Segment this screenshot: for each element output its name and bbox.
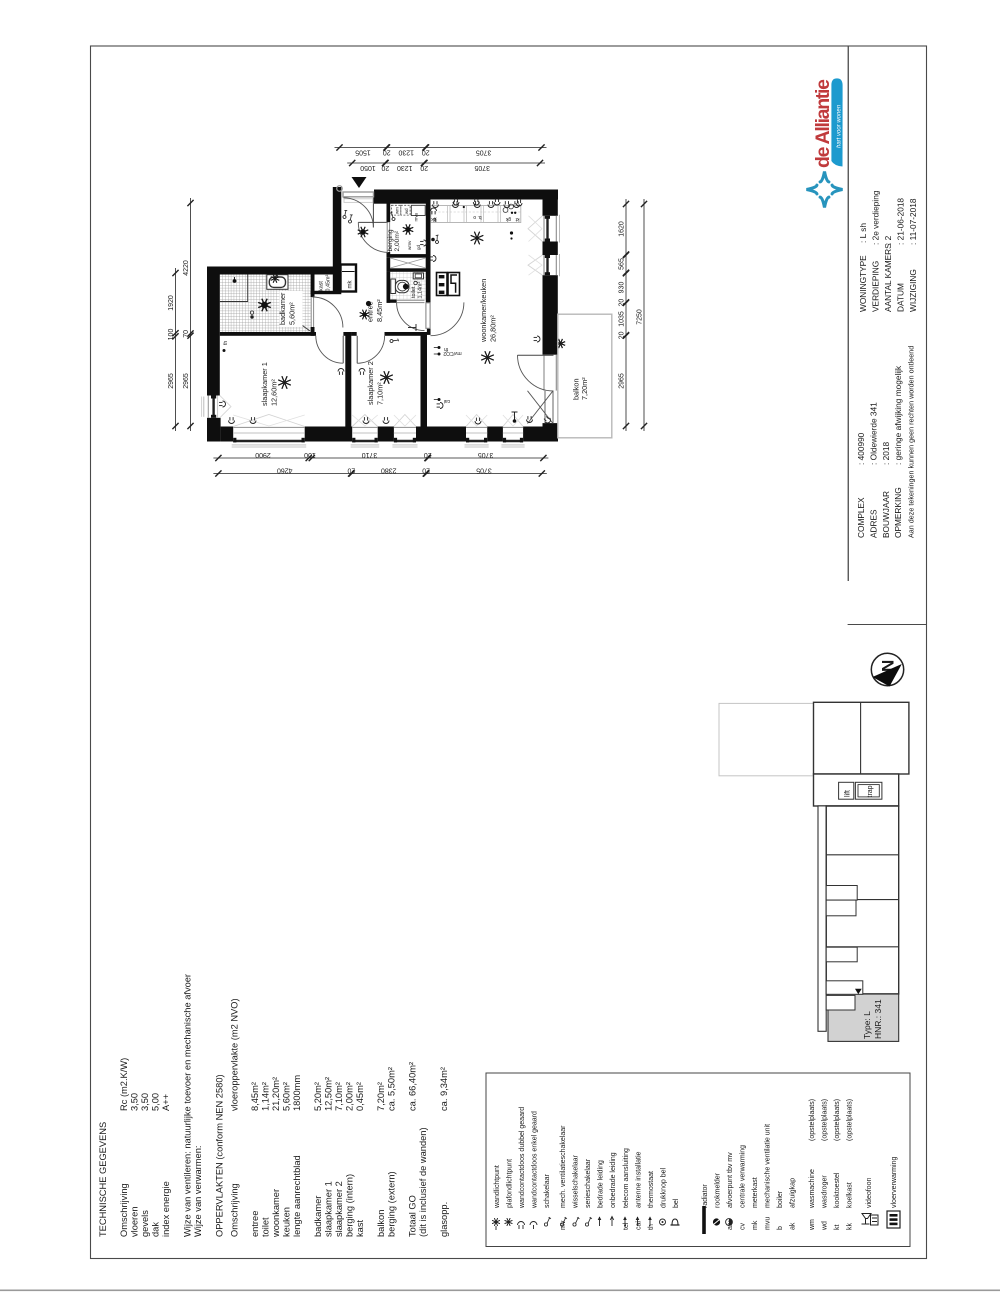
svg-text:kt: kt [834,1225,841,1231]
svg-text:radiator: radiator [702,1184,709,1208]
svg-text:ca. 66,40m²: ca. 66,40m² [408,1062,418,1111]
svg-text:toilet: toilet [411,286,417,298]
svg-text:TECHNISCHE GEGEVENS: TECHNISCHE GEGEVENS [98,1122,108,1237]
svg-text:WIJZIGING: WIJZIGING [908,269,918,312]
svg-text:OPPERVLAKTEN (conform NEN 2580: OPPERVLAKTEN (conform NEN 2580) [215,1074,225,1237]
svg-text:glasopp.: glasopp. [439,1202,449,1237]
svg-text:badkamer: badkamer [278,292,287,325]
svg-text:2965: 2965 [183,373,190,389]
svg-text:(opstelplaats): (opstelplaats) [834,1099,841,1141]
svg-text:centrale verwarming: centrale verwarming [740,1145,747,1208]
svg-text:2,00m²: 2,00m² [345,1082,355,1111]
svg-text:: Oldewierde 341: : Oldewierde 341 [869,402,879,465]
svg-text:Wijze van ventileren: natuurli: Wijze van ventileren: natuurlijke toevoe… [183,974,193,1237]
svg-text:afvoerpunt tbv mv: afvoerpunt tbv mv [727,1152,734,1208]
svg-text:0,45m²: 0,45m² [326,275,332,292]
svg-text:kast: kast [355,1220,365,1237]
svg-text:20: 20 [619,331,626,339]
svg-text:wandcontactdoos enkel geaard: wandcontactdoos enkel geaard [532,1111,539,1209]
svg-text:7,10m²: 7,10m² [334,1082,344,1111]
svg-text:wisselschakelaar: wisselschakelaar [573,1154,580,1209]
svg-text:mechanische ventilatie unit: mechanische ventilatie unit [765,1124,772,1208]
svg-text:cai: cai [444,398,450,404]
svg-text:Aan deze tekeningen kunnen gee: Aan deze tekeningen kunnen geen rechten … [907,346,916,538]
svg-text:wd: wd [822,1221,829,1231]
svg-text:keuken: keuken [282,1207,292,1237]
svg-text:5,20m²: 5,20m² [313,1082,323,1111]
svg-text:2965: 2965 [168,373,175,389]
svg-text:b: b [777,1226,784,1230]
svg-text:Totaal GO: Totaal GO [408,1195,418,1237]
svg-text:ca. 9,34m²: ca. 9,34m² [439,1067,449,1111]
svg-text:1920: 1920 [168,295,175,311]
svg-text:VERDIEPING: VERDIEPING [871,261,881,312]
svg-text:ca. 5,50m²: ca. 5,50m² [387,1067,397,1111]
svg-text:wm: wm [395,207,400,214]
svg-text:: 400990: : 400990 [856,432,866,465]
svg-text:wandcontactdoos dubbel geaard: wandcontactdoos dubbel geaard [519,1107,526,1209]
svg-text:3705: 3705 [478,451,494,458]
svg-text:wmv: wmv [407,240,412,250]
svg-text:tel: tel [623,1222,630,1230]
svg-text:5,60m²: 5,60m² [288,302,297,325]
svg-text:mvu: mvu [414,212,419,221]
svg-text:20: 20 [347,466,355,473]
svg-text:wasmachine: wasmachine [809,1169,816,1209]
svg-text:ak: ak [790,1222,797,1230]
svg-text:Wijze van verwarmen:: Wijze van verwarmen: [193,1146,203,1237]
svg-text:1505: 1505 [355,148,371,155]
svg-text:gevels: gevels [140,1210,150,1237]
svg-text:slaapkamer 2: slaapkamer 2 [334,1181,344,1237]
svg-text:3,50: 3,50 [130,1093,140,1111]
svg-text:drukknop bel: drukknop bel [661,1167,668,1208]
svg-text:3705: 3705 [476,148,492,155]
svg-text:bel: bel [673,1198,680,1208]
svg-text:(dit is inclusief de wanden): (dit is inclusief de wanden) [418,1127,428,1237]
svg-text:: L sh: : L sh [858,223,868,243]
svg-text:thermostaat: thermostaat [648,1171,655,1208]
svg-text:5,60m²: 5,60m² [282,1082,292,1111]
svg-text:wasdroger: wasdroger [822,1175,829,1209]
svg-text:berging (extern): berging (extern) [387,1171,397,1237]
svg-text:vloeren: vloeren [130,1207,140,1238]
svg-text:antenne installatie: antenne installatie [636,1151,643,1208]
svg-text:lengte aanrechtblad: lengte aanrechtblad [292,1155,302,1237]
svg-text:th: th [223,341,229,345]
svg-text:kast: kast [319,281,325,291]
svg-text:A++: A++ [161,1094,171,1111]
svg-text:3705: 3705 [474,164,490,171]
svg-text:wandlichtpunt: wandlichtpunt [494,1165,501,1209]
svg-text:AANTAL KAMERS: AANTAL KAMERS [883,243,893,312]
svg-text:1620: 1620 [619,221,626,237]
svg-text:mv/CO2: mv/CO2 [443,350,462,356]
svg-text:(opstelplaats): (opstelplaats) [847,1099,854,1141]
svg-text:wm: wm [809,1219,816,1231]
svg-text:(opstelplaats): (opstelplaats) [822,1099,829,1141]
svg-text:balkon: balkon [376,1210,386,1237]
svg-text:20: 20 [619,299,626,307]
svg-text:12,60m²: 12,60m² [270,379,279,406]
svg-text:ADRES: ADRES [869,509,879,538]
svg-text:Omschrijving: Omschrijving [119,1183,129,1237]
svg-text:DATUM: DATUM [896,283,906,312]
svg-text:7,20m²: 7,20m² [580,377,589,400]
svg-text:8,45m²: 8,45m² [250,1082,260,1111]
svg-text:: 2: : 2 [883,235,893,245]
svg-text:cai: cai [636,1221,643,1230]
svg-text:930: 930 [619,282,626,294]
svg-text:badkamer: badkamer [313,1196,323,1237]
svg-text:100: 100 [168,329,175,341]
svg-text:woonkamer/keuken: woonkamer/keuken [479,279,488,343]
svg-text:b. o: b. o [473,214,482,220]
svg-text:8,45m²: 8,45m² [375,299,384,322]
svg-text:kk: kk [847,1223,854,1231]
svg-text:slaapkamer 2: slaapkamer 2 [366,361,375,405]
svg-text:12,50m²: 12,50m² [324,1077,334,1111]
svg-text:: 11-07-2018: : 11-07-2018 [908,198,918,245]
svg-text:plafondlichtpunt: plafondlichtpunt [507,1159,514,1208]
svg-text:3705: 3705 [476,466,492,473]
svg-text:70: 70 [183,330,190,338]
svg-text:20: 20 [422,466,430,473]
svg-text:trap: trap [867,785,874,797]
svg-text:dak: dak [151,1222,161,1237]
svg-text:HNR.: 341: HNR.: 341 [873,999,883,1039]
svg-text:1,14m²: 1,14m² [418,282,424,299]
svg-text:lift: lift [845,790,852,797]
svg-text:4220: 4220 [183,260,190,276]
svg-text:7250: 7250 [637,309,644,325]
svg-text:kooktoestel: kooktoestel [834,1172,841,1208]
svg-text:: 2018: : 2018 [881,442,891,465]
svg-text:BOUWJAAR: BOUWJAAR [881,491,891,538]
svg-text:Rc (m2.K/W): Rc (m2.K/W) [119,1058,129,1111]
svg-text:: geringe afwijking mogelijk: : geringe afwijking mogelijk [893,365,903,465]
svg-text:: 21-06-2018: : 21-06-2018 [896,198,906,245]
svg-text:2,00m²: 2,00m² [394,230,401,251]
svg-text:100: 100 [304,451,316,458]
svg-text:1050: 1050 [360,164,376,171]
svg-text:4260: 4260 [277,466,293,473]
svg-text:mech. ventilatieschakelaar: mech. ventilatieschakelaar [560,1125,567,1208]
svg-text:1230: 1230 [398,148,414,155]
svg-text:gk: gk [505,216,511,222]
svg-text:gd: gd [416,244,421,250]
svg-text:vloeroppervlakte (m2 NVO): vloeroppervlakte (m2 NVO) [230,998,240,1111]
svg-text:wd: wd [404,208,409,214]
svg-text:telecom aansluiting: telecom aansluiting [623,1148,630,1208]
svg-text:20: 20 [381,164,389,171]
svg-text:berging (intern): berging (intern) [345,1174,355,1237]
svg-text:videofoon: videofoon [866,1178,873,1208]
svg-text:kt: kt [515,216,520,222]
svg-text:cv: cv [740,1223,747,1231]
svg-text:Type: L: Type: L [862,1011,872,1039]
svg-text:rookmelder: rookmelder [715,1172,722,1208]
svg-text:20: 20 [420,164,428,171]
svg-text:(opstelplaats): (opstelplaats) [809,1099,816,1141]
svg-text:7,10m²: 7,10m² [376,382,385,405]
svg-text:2900: 2900 [255,451,271,458]
svg-text:1230: 1230 [397,164,413,171]
svg-text:mk: mk [752,1220,759,1230]
svg-text:slaapkamer 1: slaapkamer 1 [260,362,269,406]
svg-text:schakelaar: schakelaar [544,1173,551,1208]
svg-text:slaapkamer 1: slaapkamer 1 [324,1181,334,1237]
svg-text:woonkamer: woonkamer [271,1189,281,1238]
svg-text:565: 565 [619,258,626,270]
svg-text:de Alliantie: de Alliantie [812,79,834,168]
svg-text:ak: ak [433,216,438,222]
svg-text:afzuigkap: afzuigkap [790,1178,797,1208]
svg-text:2965: 2965 [619,373,626,389]
svg-text:meterkast: meterkast [752,1177,759,1208]
svg-text:mk: mk [348,280,354,289]
svg-text:mvu: mvu [765,1217,772,1230]
svg-text:1800mm: 1800mm [292,1075,302,1111]
svg-text:7,20m²: 7,20m² [376,1082,386,1111]
svg-text:26,80m²: 26,80m² [489,315,498,342]
svg-text:1,14m²: 1,14m² [261,1082,271,1111]
svg-text:bedrade leiding: bedrade leiding [598,1160,605,1208]
svg-text:20: 20 [383,148,391,155]
svg-text:20: 20 [424,451,432,458]
svg-text:21,20m²: 21,20m² [271,1077,281,1111]
svg-text:vloerverwarming: vloerverwarming [891,1157,898,1208]
svg-text:0,45m²: 0,45m² [355,1082,365,1111]
svg-text:: 2e verdieping: : 2e verdieping [871,190,881,245]
svg-text:koelkast: koelkast [847,1182,854,1208]
svg-text:entree: entree [250,1211,260,1237]
svg-text:WONINGTYPE: WONINGTYPE [858,255,868,312]
svg-text:toilet: toilet [261,1217,271,1237]
svg-text:serieschakelaar: serieschakelaar [585,1158,592,1208]
svg-text:5,00: 5,00 [151,1093,161,1111]
svg-text:onbedrade leiding: onbedrade leiding [610,1152,617,1208]
svg-text:index energie: index energie [161,1181,171,1237]
svg-text:OPMERKING: OPMERKING [893,487,903,538]
svg-text:1035: 1035 [619,311,626,327]
svg-text:Omschrijving: Omschrijving [230,1183,240,1237]
svg-text:th: th [648,1224,655,1230]
svg-text:3710: 3710 [362,451,378,458]
svg-text:COMPLEX: COMPLEX [856,497,866,538]
svg-text:hart voor wonen: hart voor wonen [836,104,842,148]
svg-text:20: 20 [422,148,430,155]
svg-text:boiler: boiler [777,1190,784,1208]
svg-text:2380: 2380 [381,466,397,473]
svg-text:3,50: 3,50 [140,1093,150,1111]
